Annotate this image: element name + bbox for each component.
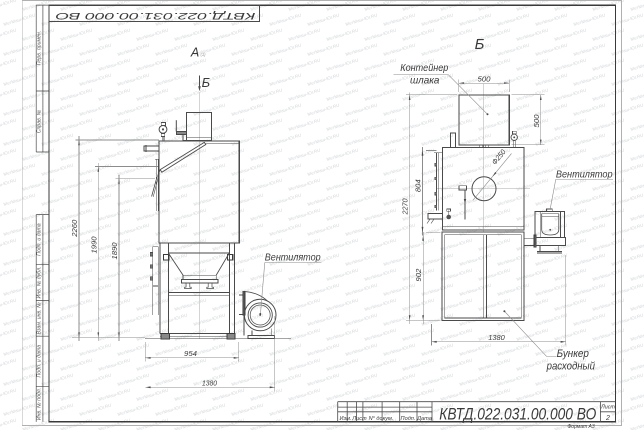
svg-text:МетМаш-Юг.RU: МетМаш-Юг.RU (117, 343, 150, 357)
svg-text:МетМаш-Юг.RU: МетМаш-Юг.RU (402, 28, 435, 42)
svg-text:МетМаш-Юг.RU: МетМаш-Юг.RU (383, 373, 416, 387)
svg-text:МетМаш-Юг.RU: МетМаш-Юг.RU (478, 118, 511, 132)
svg-text:МетМаш-Юг.RU: МетМаш-Юг.RU (3, 253, 36, 267)
svg-text:МетМаш-Юг.RU: МетМаш-Юг.RU (383, 253, 416, 267)
svg-text:МетМаш-Юг.RU: МетМаш-Юг.RU (345, 13, 378, 27)
svg-text:МетМаш-Юг.RU: МетМаш-Юг.RU (402, 388, 435, 402)
svg-text:МетМаш-Юг.RU: МетМаш-Юг.RU (592, 28, 625, 42)
svg-text:МетМаш-Юг.RU: МетМаш-Юг.RU (98, 118, 131, 132)
svg-text:МетМаш-Юг.RU: МетМаш-Юг.RU (79, 373, 112, 387)
svg-text:МетМаш-Юг.RU: МетМаш-Юг.RU (269, 133, 302, 147)
svg-text:МетМаш-Юг.RU: МетМаш-Юг.RU (326, 88, 359, 102)
svg-text:МетМаш-Юг.RU: МетМаш-Юг.RU (592, 298, 625, 312)
svg-text:МетМаш-Юг.RU: МетМаш-Юг.RU (79, 163, 112, 177)
svg-text:МетМаш-Юг.RU: МетМаш-Юг.RU (79, 43, 112, 57)
svg-text:МетМаш-Юг.RU: МетМаш-Юг.RU (345, 73, 378, 87)
svg-text:МетМаш-Юг.RU: МетМаш-Юг.RU (573, 373, 606, 387)
svg-text:МетМаш-Юг.RU: МетМаш-Юг.RU (592, 58, 625, 72)
svg-text:МетМаш-Юг.RU: МетМаш-Юг.RU (212, 178, 245, 192)
svg-text:расходный: расходный (546, 360, 595, 372)
svg-text:Взам. инв. №: Взам. инв. № (37, 302, 43, 334)
svg-text:МетМаш-Юг.RU: МетМаш-Юг.RU (630, 298, 644, 312)
svg-text:МетМаш-Юг.RU: МетМаш-Юг.RU (497, 193, 530, 207)
svg-text:МетМаш-Юг.RU: МетМаш-Юг.RU (174, 328, 207, 342)
svg-text:МетМаш-Юг.RU: МетМаш-Юг.RU (307, 73, 340, 87)
svg-text:МетМаш-Юг.RU: МетМаш-Юг.RU (269, 13, 302, 27)
svg-text:МетМаш-Юг.RU: МетМаш-Юг.RU (79, 403, 112, 417)
svg-text:КВТД.022.031.00.000 ВО: КВТД.022.031.00.000 ВО (439, 405, 596, 424)
svg-text:МетМаш-Юг.RU: МетМаш-Юг.RU (212, 88, 245, 102)
svg-text:МетМаш-Юг.RU: МетМаш-Юг.RU (117, 223, 150, 237)
svg-text:МетМаш-Юг.RU: МетМаш-Юг.RU (345, 403, 378, 417)
svg-text:МетМаш-Юг.RU: МетМаш-Юг.RU (326, 298, 359, 312)
svg-text:МетМаш-Юг.RU: МетМаш-Юг.RU (174, 418, 207, 430)
svg-text:МетМаш-Юг.RU: МетМаш-Юг.RU (269, 283, 302, 297)
svg-text:МетМаш-Юг.RU: МетМаш-Юг.RU (79, 73, 112, 87)
svg-text:МетМаш-Юг.RU: МетМаш-Юг.RU (554, 28, 587, 42)
svg-text:МетМаш-Юг.RU: МетМаш-Юг.RU (288, 418, 321, 430)
svg-text:МетМаш-Юг.RU: МетМаш-Юг.RU (3, 193, 36, 207)
svg-text:МетМаш-Юг.RU: МетМаш-Юг.RU (440, 328, 473, 342)
svg-text:МетМаш-Юг.RU: МетМаш-Юг.RU (117, 163, 150, 177)
svg-text:МетМаш-Юг.RU: МетМаш-Юг.RU (630, 88, 644, 102)
svg-text:МетМаш-Юг.RU: МетМаш-Юг.RU (459, 193, 492, 207)
svg-text:МетМаш-Юг.RU: МетМаш-Юг.RU (516, 148, 549, 162)
svg-text:МетМаш-Юг.RU: МетМаш-Юг.RU (155, 103, 188, 117)
svg-text:Инв. № подл.: Инв. № подл. (37, 388, 43, 420)
svg-text:МетМаш-Юг.RU: МетМаш-Юг.RU (41, 223, 74, 237)
svg-text:МетМаш-Юг.RU: МетМаш-Юг.RU (345, 373, 378, 387)
svg-text:МетМаш-Юг.RU: МетМаш-Юг.RU (345, 223, 378, 237)
svg-text:МетМаш-Юг.RU: МетМаш-Юг.RU (383, 223, 416, 237)
svg-text:МетМаш-Юг.RU: МетМаш-Юг.RU (250, 388, 283, 402)
svg-text:МетМаш-Юг.RU: МетМаш-Юг.RU (459, 373, 492, 387)
svg-text:МетМаш-Юг.RU: МетМаш-Юг.RU (0, 328, 17, 342)
svg-text:МетМаш-Юг.RU: МетМаш-Юг.RU (554, 58, 587, 72)
svg-text:Контейнер: Контейнер (400, 62, 448, 74)
svg-text:МетМаш-Юг.RU: МетМаш-Юг.RU (592, 358, 625, 372)
svg-text:МетМаш-Юг.RU: МетМаш-Юг.RU (250, 58, 283, 72)
svg-text:Б: Б (475, 36, 485, 53)
svg-text:МетМаш-Юг.RU: МетМаш-Юг.RU (592, 208, 625, 222)
svg-text:МетМаш-Юг.RU: МетМаш-Юг.RU (136, 358, 169, 372)
svg-text:МетМаш-Юг.RU: МетМаш-Юг.RU (250, 208, 283, 222)
svg-text:МетМаш-Юг.RU: МетМаш-Юг.RU (60, 268, 93, 282)
svg-text:МетМаш-Юг.RU: МетМаш-Юг.RU (117, 43, 150, 57)
svg-text:МетМаш-Юг.RU: МетМаш-Юг.RU (364, 328, 397, 342)
svg-text:МетМаш-Юг.RU: МетМаш-Юг.RU (174, 388, 207, 402)
svg-text:МетМаш-Юг.RU: МетМаш-Юг.RU (60, 208, 93, 222)
svg-text:МетМаш-Юг.RU: МетМаш-Юг.RU (231, 253, 264, 267)
svg-text:МетМаш-Юг.RU: МетМаш-Юг.RU (0, 148, 17, 162)
svg-text:МетМаш-Юг.RU: МетМаш-Юг.RU (516, 58, 549, 72)
svg-text:МетМаш-Юг.RU: МетМаш-Юг.RU (592, 148, 625, 162)
svg-text:МетМаш-Юг.RU: МетМаш-Юг.RU (98, 388, 131, 402)
svg-text:МетМаш-Юг.RU: МетМаш-Юг.RU (0, 58, 17, 72)
svg-text:МетМаш-Юг.RU: МетМаш-Юг.RU (231, 43, 264, 57)
svg-text:МетМаш-Юг.RU: МетМаш-Юг.RU (440, 118, 473, 132)
svg-text:МетМаш-Юг.RU: МетМаш-Юг.RU (212, 28, 245, 42)
svg-text:МетМаш-Юг.RU: МетМаш-Юг.RU (573, 253, 606, 267)
svg-text:МетМаш-Юг.RU: МетМаш-Юг.RU (231, 103, 264, 117)
svg-text:МетМаш-Юг.RU: МетМаш-Юг.RU (288, 118, 321, 132)
svg-text:МетМаш-Юг.RU: МетМаш-Юг.RU (592, 238, 625, 252)
svg-text:МетМаш-Юг.RU: МетМаш-Юг.RU (136, 58, 169, 72)
svg-text:МетМаш-Юг.RU: МетМаш-Юг.RU (535, 253, 568, 267)
svg-text:МетМаш-Юг.RU: МетМаш-Юг.RU (136, 208, 169, 222)
svg-text:МетМаш-Юг.RU: МетМаш-Юг.RU (497, 313, 530, 327)
svg-text:МетМаш-Юг.RU: МетМаш-Юг.RU (155, 373, 188, 387)
svg-text:МетМаш-Юг.RU: МетМаш-Юг.RU (231, 373, 264, 387)
svg-text:МетМаш-Юг.RU: МетМаш-Юг.RU (0, 418, 17, 430)
svg-text:МетМаш-Юг.RU: МетМаш-Юг.RU (326, 328, 359, 342)
svg-text:МетМаш-Юг.RU: МетМаш-Юг.RU (79, 193, 112, 207)
svg-text:МетМаш-Юг.RU: МетМаш-Юг.RU (288, 388, 321, 402)
svg-text:МетМаш-Юг.RU: МетМаш-Юг.RU (60, 298, 93, 312)
svg-text:МетМаш-Юг.RU: МетМаш-Юг.RU (288, 298, 321, 312)
svg-text:МетМаш-Юг.RU: МетМаш-Юг.RU (60, 328, 93, 342)
svg-text:МетМаш-Юг.RU: МетМаш-Юг.RU (630, 178, 644, 192)
svg-text:МетМаш-Юг.RU: МетМаш-Юг.RU (516, 268, 549, 282)
svg-text:МетМаш-Юг.RU: МетМаш-Юг.RU (193, 343, 226, 357)
svg-text:МетМаш-Юг.RU: МетМаш-Юг.RU (269, 73, 302, 87)
svg-text:МетМаш-Юг.RU: МетМаш-Юг.RU (250, 118, 283, 132)
svg-text:МетМаш-Юг.RU: МетМаш-Юг.RU (345, 313, 378, 327)
svg-text:МетМаш-Юг.RU: МетМаш-Юг.RU (516, 0, 549, 12)
svg-text:МетМаш-Юг.RU: МетМаш-Юг.RU (592, 328, 625, 342)
svg-text:МетМаш-Юг.RU: МетМаш-Юг.RU (478, 178, 511, 192)
svg-text:МетМаш-Юг.RU: МетМаш-Юг.RU (383, 43, 416, 57)
svg-text:МетМаш-Юг.RU: МетМаш-Юг.RU (630, 118, 644, 132)
svg-text:МетМаш-Юг.RU: МетМаш-Юг.RU (22, 178, 55, 192)
svg-text:МетМаш-Юг.RU: МетМаш-Юг.RU (307, 313, 340, 327)
svg-text:МетМаш-Юг.RU: МетМаш-Юг.RU (326, 148, 359, 162)
svg-text:МетМаш-Юг.RU: МетМаш-Юг.RU (573, 313, 606, 327)
svg-text:МетМаш-Юг.RU: МетМаш-Юг.RU (516, 358, 549, 372)
svg-text:1380: 1380 (202, 379, 218, 388)
svg-text:МетМаш-Юг.RU: МетМаш-Юг.RU (193, 283, 226, 297)
svg-text:МетМаш-Юг.RU: МетМаш-Юг.RU (516, 28, 549, 42)
svg-text:МетМаш-Юг.RU: МетМаш-Юг.RU (535, 73, 568, 87)
svg-text:МетМаш-Юг.RU: МетМаш-Юг.RU (155, 343, 188, 357)
svg-text:МетМаш-Юг.RU: МетМаш-Юг.RU (41, 403, 74, 417)
svg-text:МетМаш-Юг.RU: МетМаш-Юг.RU (402, 238, 435, 252)
svg-text:МетМаш-Юг.RU: МетМаш-Юг.RU (535, 283, 568, 297)
svg-text:МетМаш-Юг.RU: МетМаш-Юг.RU (459, 13, 492, 27)
svg-text:МетМаш-Юг.RU: МетМаш-Юг.RU (307, 163, 340, 177)
svg-text:МетМаш-Юг.RU: МетМаш-Юг.RU (79, 253, 112, 267)
svg-text:МетМаш-Юг.RU: МетМаш-Юг.RU (592, 88, 625, 102)
svg-text:МетМаш-Юг.RU: МетМаш-Юг.RU (421, 313, 454, 327)
svg-text:МетМаш-Юг.RU: МетМаш-Юг.RU (193, 223, 226, 237)
svg-text:МетМаш-Юг.RU: МетМаш-Юг.RU (98, 268, 131, 282)
svg-text:МетМаш-Юг.RU: МетМаш-Юг.RU (288, 358, 321, 372)
svg-text:МетМаш-Юг.RU: МетМаш-Юг.RU (193, 403, 226, 417)
svg-text:МетМаш-Юг.RU: МетМаш-Юг.RU (288, 28, 321, 42)
svg-text:N° докум.: N° докум. (369, 416, 394, 422)
svg-text:МетМаш-Юг.RU: МетМаш-Юг.RU (117, 403, 150, 417)
svg-text:Изм.: Изм. (340, 416, 352, 422)
svg-text:МетМаш-Юг.RU: МетМаш-Юг.RU (326, 0, 359, 12)
svg-text:МетМаш-Юг.RU: МетМаш-Юг.RU (535, 373, 568, 387)
svg-text:МетМаш-Юг.RU: МетМаш-Юг.RU (231, 73, 264, 87)
svg-text:МетМаш-Юг.RU: МетМаш-Юг.RU (174, 118, 207, 132)
svg-text:Перв. примен.: Перв. примен. (37, 31, 43, 65)
svg-text:МетМаш-Юг.RU: МетМаш-Юг.RU (155, 73, 188, 87)
svg-text:МетМаш-Юг.RU: МетМаш-Юг.RU (478, 58, 511, 72)
svg-text:МетМаш-Юг.RU: МетМаш-Юг.RU (3, 133, 36, 147)
svg-text:МетМаш-Юг.RU: МетМаш-Юг.RU (630, 58, 644, 72)
svg-text:МетМаш-Юг.RU: МетМаш-Юг.RU (497, 253, 530, 267)
svg-text:МетМаш-Юг.RU: МетМаш-Юг.RU (250, 238, 283, 252)
svg-text:МетМаш-Юг.RU: МетМаш-Юг.RU (364, 358, 397, 372)
svg-text:804: 804 (414, 179, 423, 192)
svg-text:МетМаш-Юг.RU: МетМаш-Юг.RU (98, 298, 131, 312)
svg-text:Справ. №: Справ. № (37, 109, 43, 133)
svg-text:1890: 1890 (110, 243, 119, 260)
svg-text:МетМаш-Юг.RU: МетМаш-Юг.RU (630, 148, 644, 162)
svg-text:МетМаш-Юг.RU: МетМаш-Юг.RU (0, 268, 17, 282)
svg-text:МетМаш-Юг.RU: МетМаш-Юг.RU (288, 178, 321, 192)
svg-text:МетМаш-Юг.RU: МетМаш-Юг.RU (155, 403, 188, 417)
svg-text:МетМаш-Юг.RU: МетМаш-Юг.RU (364, 178, 397, 192)
svg-text:МетМаш-Юг.RU: МетМаш-Юг.RU (174, 28, 207, 42)
svg-text:МетМаш-Юг.RU: МетМаш-Юг.RU (383, 103, 416, 117)
svg-text:МетМаш-Юг.RU: МетМаш-Юг.RU (250, 358, 283, 372)
svg-text:МетМаш-Юг.RU: МетМаш-Юг.RU (269, 403, 302, 417)
svg-text:МетМаш-Юг.RU: МетМаш-Юг.RU (364, 58, 397, 72)
svg-text:МетМаш-Юг.RU: МетМаш-Юг.RU (0, 298, 17, 312)
svg-text:МетМаш-Юг.RU: МетМаш-Юг.RU (250, 268, 283, 282)
svg-text:МетМаш-Юг.RU: МетМаш-Юг.RU (497, 43, 530, 57)
svg-text:МетМаш-Юг.RU: МетМаш-Юг.RU (117, 193, 150, 207)
svg-text:МетМаш-Юг.RU: МетМаш-Юг.RU (22, 88, 55, 102)
svg-text:МетМаш-Юг.RU: МетМаш-Юг.RU (174, 298, 207, 312)
svg-text:МетМаш-Юг.RU: МетМаш-Юг.RU (231, 343, 264, 357)
svg-text:МетМаш-Юг.RU: МетМаш-Юг.RU (326, 178, 359, 192)
svg-text:МетМаш-Юг.RU: МетМаш-Юг.RU (231, 163, 264, 177)
svg-text:МетМаш-Юг.RU: МетМаш-Юг.RU (497, 103, 530, 117)
svg-text:МетМаш-Юг.RU: МетМаш-Юг.RU (193, 193, 226, 207)
svg-text:МетМаш-Юг.RU: МетМаш-Юг.RU (573, 283, 606, 297)
svg-text:МетМаш-Юг.RU: МетМаш-Юг.RU (269, 343, 302, 357)
svg-text:МетМаш-Юг.RU: МетМаш-Юг.RU (421, 133, 454, 147)
svg-text:МетМаш-Юг.RU: МетМаш-Юг.RU (136, 388, 169, 402)
svg-text:МетМаш-Юг.RU: МетМаш-Юг.RU (155, 193, 188, 207)
svg-text:МетМаш-Юг.RU: МетМаш-Юг.RU (60, 28, 93, 42)
svg-text:МетМаш-Юг.RU: МетМаш-Юг.RU (516, 298, 549, 312)
svg-text:954: 954 (184, 349, 197, 358)
svg-text:МетМаш-Юг.RU: МетМаш-Юг.RU (3, 13, 36, 27)
svg-text:902: 902 (414, 269, 423, 282)
svg-text:МетМаш-Юг.RU: МетМаш-Юг.RU (478, 388, 511, 402)
svg-text:МетМаш-Юг.RU: МетМаш-Юг.RU (212, 358, 245, 372)
svg-text:Дата: Дата (416, 416, 432, 422)
svg-text:МетМаш-Юг.RU: МетМаш-Юг.RU (516, 388, 549, 402)
svg-text:Бункер: Бункер (557, 348, 589, 360)
svg-text:МетМаш-Юг.RU: МетМаш-Юг.RU (3, 43, 36, 57)
svg-text:МетМаш-Юг.RU: МетМаш-Юг.RU (459, 343, 492, 357)
svg-text:МетМаш-Юг.RU: МетМаш-Юг.RU (98, 178, 131, 192)
svg-text:МетМаш-Юг.RU: МетМаш-Юг.RU (497, 373, 530, 387)
svg-text:МетМаш-Юг.RU: МетМаш-Юг.RU (459, 283, 492, 297)
svg-text:Б: Б (202, 75, 211, 90)
svg-text:МетМаш-Юг.RU: МетМаш-Юг.RU (307, 403, 340, 417)
svg-text:МетМаш-Юг.RU: МетМаш-Юг.RU (269, 43, 302, 57)
svg-text:МетМаш-Юг.RU: МетМаш-Юг.RU (193, 163, 226, 177)
svg-text:МетМаш-Юг.RU: МетМаш-Юг.RU (307, 223, 340, 237)
svg-text:МетМаш-Юг.RU: МетМаш-Юг.RU (0, 178, 17, 192)
svg-text:МетМаш-Юг.RU: МетМаш-Юг.RU (554, 268, 587, 282)
svg-text:МетМаш-Юг.RU: МетМаш-Юг.RU (573, 223, 606, 237)
svg-text:МетМаш-Юг.RU: МетМаш-Юг.RU (630, 238, 644, 252)
svg-text:МетМаш-Юг.RU: МетМаш-Юг.RU (592, 268, 625, 282)
svg-text:МетМаш-Юг.RU: МетМаш-Юг.RU (41, 73, 74, 87)
svg-text:МетМаш-Юг.RU: МетМаш-Юг.RU (288, 148, 321, 162)
svg-text:МетМаш-Юг.RU: МетМаш-Юг.RU (288, 328, 321, 342)
svg-text:МетМаш-Юг.RU: МетМаш-Юг.RU (383, 283, 416, 297)
svg-text:МетМаш-Юг.RU: МетМаш-Юг.RU (326, 238, 359, 252)
svg-text:МетМаш-Юг.RU: МетМаш-Юг.RU (345, 253, 378, 267)
svg-text:Вентилятор: Вентилятор (556, 168, 613, 180)
svg-text:МетМаш-Юг.RU: МетМаш-Юг.RU (402, 0, 435, 12)
svg-text:МетМаш-Юг.RU: МетМаш-Юг.RU (478, 358, 511, 372)
svg-text:МетМаш-Юг.RU: МетМаш-Юг.RU (345, 283, 378, 297)
svg-text:МетМаш-Юг.RU: МетМаш-Юг.RU (459, 253, 492, 267)
svg-text:МетМаш-Юг.RU: МетМаш-Юг.RU (136, 28, 169, 42)
svg-text:МетМаш-Юг.RU: МетМаш-Юг.RU (592, 118, 625, 132)
svg-text:МетМаш-Юг.RU: МетМаш-Юг.RU (554, 88, 587, 102)
svg-text:МетМаш-Юг.RU: МетМаш-Юг.RU (421, 343, 454, 357)
svg-text:МетМаш-Юг.RU: МетМаш-Юг.RU (440, 28, 473, 42)
svg-text:МетМаш-Юг.RU: МетМаш-Юг.RU (60, 148, 93, 162)
svg-text:МетМаш-Юг.RU: МетМаш-Юг.RU (269, 103, 302, 117)
svg-text:МетМаш-Юг.RU: МетМаш-Юг.RU (326, 208, 359, 222)
svg-text:МетМаш-Юг.RU: МетМаш-Юг.RU (383, 133, 416, 147)
svg-text:МетМаш-Юг.RU: МетМаш-Юг.RU (402, 328, 435, 342)
svg-text:МетМаш-Юг.RU: МетМаш-Юг.RU (421, 283, 454, 297)
svg-text:МетМаш-Юг.RU: МетМаш-Юг.RU (364, 208, 397, 222)
svg-text:МетМаш-Юг.RU: МетМаш-Юг.RU (250, 28, 283, 42)
svg-text:МетМаш-Юг.RU: МетМаш-Юг.RU (535, 13, 568, 27)
svg-text:МетМаш-Юг.RU: МетМаш-Юг.RU (60, 58, 93, 72)
svg-text:МетМаш-Юг.RU: МетМаш-Юг.RU (98, 208, 131, 222)
svg-text:МетМаш-Юг.RU: МетМаш-Юг.RU (364, 388, 397, 402)
svg-text:(1): (1) (200, 52, 206, 57)
svg-text:МетМаш-Юг.RU: МетМаш-Юг.RU (345, 43, 378, 57)
svg-text:МетМаш-Юг.RU: МетМаш-Юг.RU (402, 118, 435, 132)
svg-text:МетМаш-Юг.RU: МетМаш-Юг.RU (554, 118, 587, 132)
svg-text:МетМаш-Юг.RU: МетМаш-Юг.RU (288, 88, 321, 102)
svg-text:МетМаш-Юг.RU: МетМаш-Юг.RU (630, 268, 644, 282)
svg-text:А: А (190, 46, 199, 60)
svg-text:МетМаш-Юг.RU: МетМаш-Юг.RU (98, 148, 131, 162)
svg-text:МетМаш-Юг.RU: МетМаш-Юг.RU (573, 133, 606, 147)
svg-text:МетМаш-Юг.RU: МетМаш-Юг.RU (98, 88, 131, 102)
svg-text:МетМаш-Юг.RU: МетМаш-Юг.RU (307, 343, 340, 357)
svg-text:МетМаш-Юг.RU: МетМаш-Юг.RU (117, 103, 150, 117)
svg-text:МетМаш-Юг.RU: МетМаш-Юг.RU (136, 238, 169, 252)
svg-text:МетМаш-Юг.RU: МетМаш-Юг.RU (60, 388, 93, 402)
svg-text:МетМаш-Юг.RU: МетМаш-Юг.RU (364, 0, 397, 12)
svg-text:МетМаш-Юг.RU: МетМаш-Юг.RU (60, 358, 93, 372)
svg-text:МетМаш-Юг.RU: МетМаш-Юг.RU (573, 43, 606, 57)
svg-text:Вентилятор: Вентилятор (265, 251, 321, 263)
svg-text:МетМаш-Юг.RU: МетМаш-Юг.RU (345, 193, 378, 207)
svg-text:МетМаш-Юг.RU: МетМаш-Юг.RU (478, 208, 511, 222)
svg-text:МетМаш-Юг.RU: МетМаш-Юг.RU (22, 148, 55, 162)
svg-text:МетМаш-Юг.RU: МетМаш-Юг.RU (630, 328, 644, 342)
svg-text:МетМаш-Юг.RU: МетМаш-Юг.RU (212, 238, 245, 252)
svg-text:МетМаш-Юг.RU: МетМаш-Юг.RU (592, 0, 625, 12)
svg-text:МетМаш-Юг.RU: МетМаш-Юг.RU (41, 313, 74, 327)
svg-text:МетМаш-Юг.RU: МетМаш-Юг.RU (117, 373, 150, 387)
svg-text:МетМаш-Юг.RU: МетМаш-Юг.RU (98, 28, 131, 42)
svg-text:МетМаш-Юг.RU: МетМаш-Юг.RU (0, 118, 17, 132)
svg-text:МетМаш-Юг.RU: МетМаш-Юг.RU (231, 133, 264, 147)
svg-text:2270: 2270 (400, 199, 409, 216)
svg-text:Лист: Лист (600, 405, 615, 411)
svg-text:МетМаш-Юг.RU: МетМаш-Юг.RU (440, 148, 473, 162)
svg-text:2260: 2260 (70, 220, 79, 238)
svg-text:МетМаш-Юг.RU: МетМаш-Юг.RU (212, 118, 245, 132)
svg-text:МетМаш-Юг.RU: МетМаш-Юг.RU (193, 103, 226, 117)
svg-text:Инв. № дубл.: Инв. № дубл. (37, 267, 43, 299)
svg-text:МетМаш-Юг.RU: МетМаш-Юг.RU (516, 178, 549, 192)
svg-text:МетМаш-Юг.RU: МетМаш-Юг.RU (98, 58, 131, 72)
svg-text:МетМаш-Юг.RU: МетМаш-Юг.RU (3, 223, 36, 237)
svg-text:МетМаш-Юг.RU: МетМаш-Юг.RU (440, 388, 473, 402)
svg-text:МетМаш-Юг.RU: МетМаш-Юг.RU (573, 73, 606, 87)
svg-text:МетМаш-Юг.RU: МетМаш-Юг.RU (440, 0, 473, 12)
svg-text:МетМаш-Юг.RU: МетМаш-Юг.RU (193, 133, 226, 147)
svg-text:МетМаш-Юг.RU: МетМаш-Юг.RU (250, 178, 283, 192)
svg-text:МетМаш-Юг.RU: МетМаш-Юг.RU (3, 163, 36, 177)
svg-text:Подп. и дата: Подп. и дата (37, 345, 43, 378)
svg-text:МетМаш-Юг.RU: МетМаш-Юг.RU (41, 103, 74, 117)
svg-text:МетМаш-Юг.RU: МетМаш-Юг.RU (41, 283, 74, 297)
svg-text:МетМаш-Юг.RU: МетМаш-Юг.RU (459, 313, 492, 327)
svg-text:МетМаш-Юг.RU: МетМаш-Юг.RU (554, 388, 587, 402)
svg-text:МетМаш-Юг.RU: МетМаш-Юг.RU (60, 418, 93, 430)
svg-text:МетМаш-Юг.RU: МетМаш-Юг.RU (3, 73, 36, 87)
svg-text:МетМаш-Юг.RU: МетМаш-Юг.RU (155, 43, 188, 57)
svg-text:МетМаш-Юг.RU: МетМаш-Юг.RU (383, 313, 416, 327)
svg-text:МетМаш-Юг.RU: МетМаш-Юг.RU (193, 253, 226, 267)
svg-text:МетМаш-Юг.RU: МетМаш-Юг.RU (307, 193, 340, 207)
svg-text:МетМаш-Юг.RU: МетМаш-Юг.RU (0, 88, 17, 102)
svg-text:МетМаш-Юг.RU: МетМаш-Юг.RU (136, 88, 169, 102)
svg-text:МетМаш-Юг.RU: МетМаш-Юг.RU (630, 388, 644, 402)
svg-text:МетМаш-Юг.RU: МетМаш-Юг.RU (41, 133, 74, 147)
svg-text:МетМаш-Юг.RU: МетМаш-Юг.RU (79, 103, 112, 117)
svg-text:МетМаш-Юг.RU: МетМаш-Юг.RU (60, 238, 93, 252)
svg-text:МетМаш-Юг.RU: МетМаш-Юг.RU (212, 388, 245, 402)
svg-text:МетМаш-Юг.RU: МетМаш-Юг.RU (0, 358, 17, 372)
svg-text:МетМаш-Юг.RU: МетМаш-Юг.RU (497, 163, 530, 177)
svg-text:МетМаш-Юг.RU: МетМаш-Юг.RU (136, 418, 169, 430)
svg-text:МетМаш-Юг.RU: МетМаш-Юг.RU (402, 298, 435, 312)
svg-text:МетМаш-Юг.RU: МетМаш-Юг.RU (174, 58, 207, 72)
svg-text:МетМаш-Юг.RU: МетМаш-Юг.RU (364, 88, 397, 102)
svg-text:МетМаш-Юг.RU: МетМаш-Юг.RU (573, 13, 606, 27)
svg-text:МетМаш-Юг.RU: МетМаш-Юг.RU (136, 298, 169, 312)
svg-text:МетМаш-Юг.RU: МетМаш-Юг.RU (307, 103, 340, 117)
svg-text:МетМаш-Юг.RU: МетМаш-Юг.RU (535, 313, 568, 327)
svg-text:МетМаш-Юг.RU: МетМаш-Юг.RU (478, 268, 511, 282)
svg-text:МетМаш-Юг.RU: МетМаш-Юг.RU (364, 148, 397, 162)
svg-text:МетМаш-Юг.RU: МетМаш-Юг.RU (117, 313, 150, 327)
